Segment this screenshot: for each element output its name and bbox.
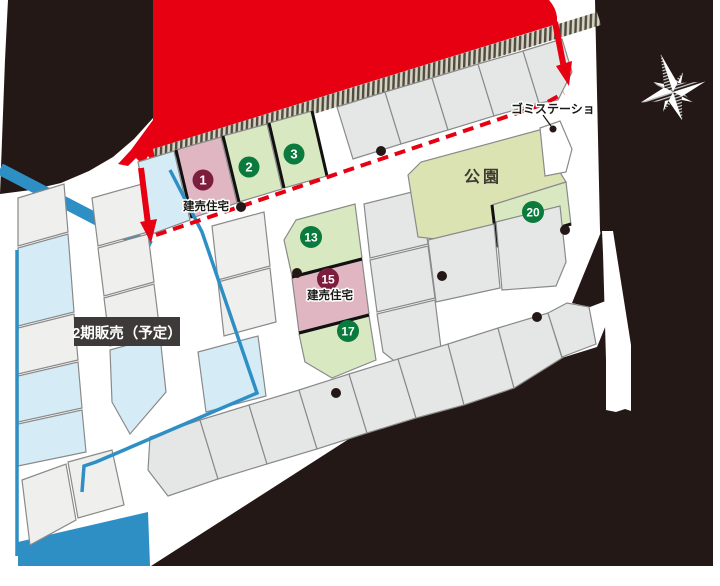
subdivision-map: 1 2 3 13 15 17 20 建売住宅 建売住宅 公園 ゴミステーショ 2… <box>0 0 720 586</box>
survey-point-dot <box>532 312 542 322</box>
svg-text:1: 1 <box>199 173 206 188</box>
lot-1-badge: 1 <box>193 170 214 191</box>
svg-text:3: 3 <box>290 147 297 162</box>
survey-point-dot <box>292 268 302 278</box>
svg-text:20: 20 <box>526 206 540 220</box>
lot-3-badge: 3 <box>284 144 305 165</box>
svg-text:2: 2 <box>245 160 252 175</box>
lot-15-badge: 15 <box>317 268 339 290</box>
lot-2-badge: 2 <box>239 157 260 178</box>
lot-15-type-label: 建売住宅 <box>307 288 353 302</box>
park-label: 公園 <box>464 168 502 186</box>
svg-text:13: 13 <box>304 231 318 245</box>
garbage-station-dot <box>550 126 557 133</box>
survey-point-dot <box>376 146 386 156</box>
lot-17-badge: 17 <box>337 320 359 342</box>
survey-point-dot <box>560 225 570 235</box>
phase2-lot-lightblue <box>18 234 74 326</box>
svg-text:2期販売（予定）: 2期販売（予定） <box>72 324 182 342</box>
lot-13-badge: 13 <box>300 226 322 248</box>
lot-20-badge: 20 <box>522 201 544 223</box>
svg-text:17: 17 <box>341 325 355 339</box>
survey-point-dot <box>236 202 246 212</box>
site-plan-svg: 1 2 3 13 15 17 20 建売住宅 建売住宅 公園 ゴミステーショ 2… <box>0 0 720 586</box>
lot-1-type-label: 建売住宅 <box>183 199 229 213</box>
phase2-badge: 2期販売（予定） <box>72 317 182 346</box>
svg-text:15: 15 <box>321 273 335 287</box>
survey-point-dot <box>437 271 447 281</box>
garbage-station-label: ゴミステーショ <box>511 101 595 116</box>
survey-point-dot <box>331 388 341 398</box>
